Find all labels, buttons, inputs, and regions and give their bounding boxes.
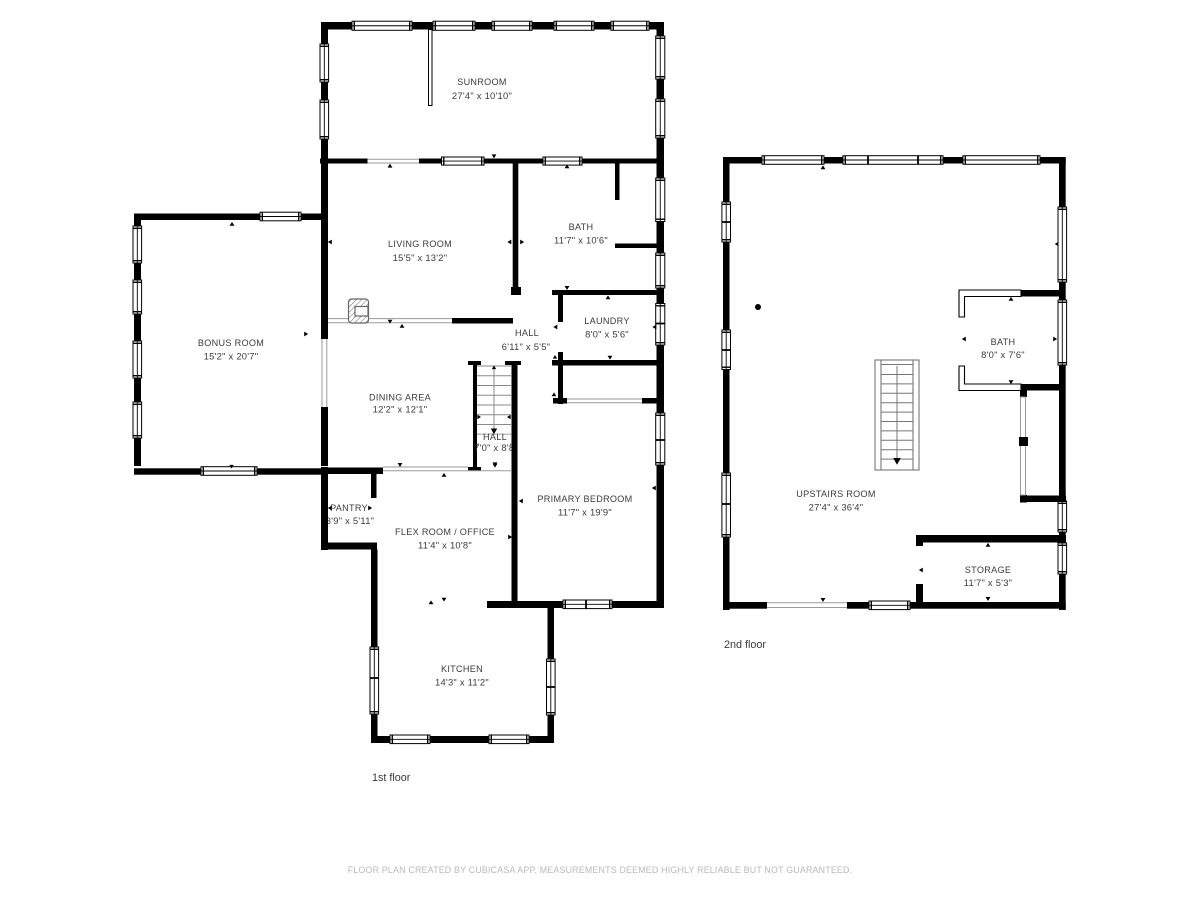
svg-text:LIVING ROOM: LIVING ROOM <box>388 239 452 249</box>
svg-text:UPSTAIRS ROOM: UPSTAIRS ROOM <box>796 489 876 499</box>
svg-text:11'7" x 5'3": 11'7" x 5'3" <box>964 577 1013 588</box>
svg-text:2nd floor: 2nd floor <box>724 639 766 651</box>
svg-text:KITCHEN: KITCHEN <box>441 664 483 674</box>
svg-text:11'4" x 10'8": 11'4" x 10'8" <box>418 540 472 551</box>
svg-text:8'0" x 7'6": 8'0" x 7'6" <box>981 349 1025 360</box>
svg-text:PRIMARY BEDROOM: PRIMARY BEDROOM <box>537 494 632 504</box>
svg-text:STORAGE: STORAGE <box>965 565 1011 575</box>
svg-text:11'7" x 19'9": 11'7" x 19'9" <box>558 507 612 518</box>
svg-text:HALL: HALL <box>515 328 539 338</box>
svg-text:27'4" x 10'10": 27'4" x 10'10" <box>452 90 512 101</box>
svg-text:DINING AREA: DINING AREA <box>369 393 432 403</box>
svg-text:15'5" x 13'2": 15'5" x 13'2" <box>393 252 448 263</box>
svg-text:BATH: BATH <box>991 337 1016 347</box>
svg-text:14'3" x 11'2": 14'3" x 11'2" <box>435 677 489 688</box>
svg-text:12'2" x 12'1": 12'2" x 12'1" <box>373 404 428 415</box>
svg-text:27'4" x 36'4": 27'4" x 36'4" <box>809 502 864 513</box>
svg-text:6'11" x 5'5": 6'11" x 5'5" <box>502 341 551 352</box>
svg-text:HALL: HALL <box>483 432 507 442</box>
svg-text:FLEX ROOM / OFFICE: FLEX ROOM / OFFICE <box>395 527 495 537</box>
svg-text:PANTRY: PANTRY <box>330 503 368 513</box>
svg-text:3'9" x 5'11": 3'9" x 5'11" <box>326 515 375 526</box>
svg-text:LAUNDRY: LAUNDRY <box>584 316 629 326</box>
svg-text:11'7" x 10'6": 11'7" x 10'6" <box>554 235 608 246</box>
svg-text:BATH: BATH <box>569 222 594 232</box>
svg-text:1st floor: 1st floor <box>372 772 411 784</box>
svg-text:BONUS ROOM: BONUS ROOM <box>198 338 264 348</box>
svg-text:FLOOR PLAN CREATED BY CUBICASA: FLOOR PLAN CREATED BY CUBICASA APP. MEAS… <box>348 865 853 875</box>
svg-text:8'0" x 5'6": 8'0" x 5'6" <box>585 329 629 340</box>
svg-text:15'2" x 20'7": 15'2" x 20'7" <box>204 351 259 362</box>
svg-text:7'0" x 8'8": 7'0" x 8'8" <box>474 442 518 453</box>
svg-text:SUNROOM: SUNROOM <box>457 77 507 87</box>
